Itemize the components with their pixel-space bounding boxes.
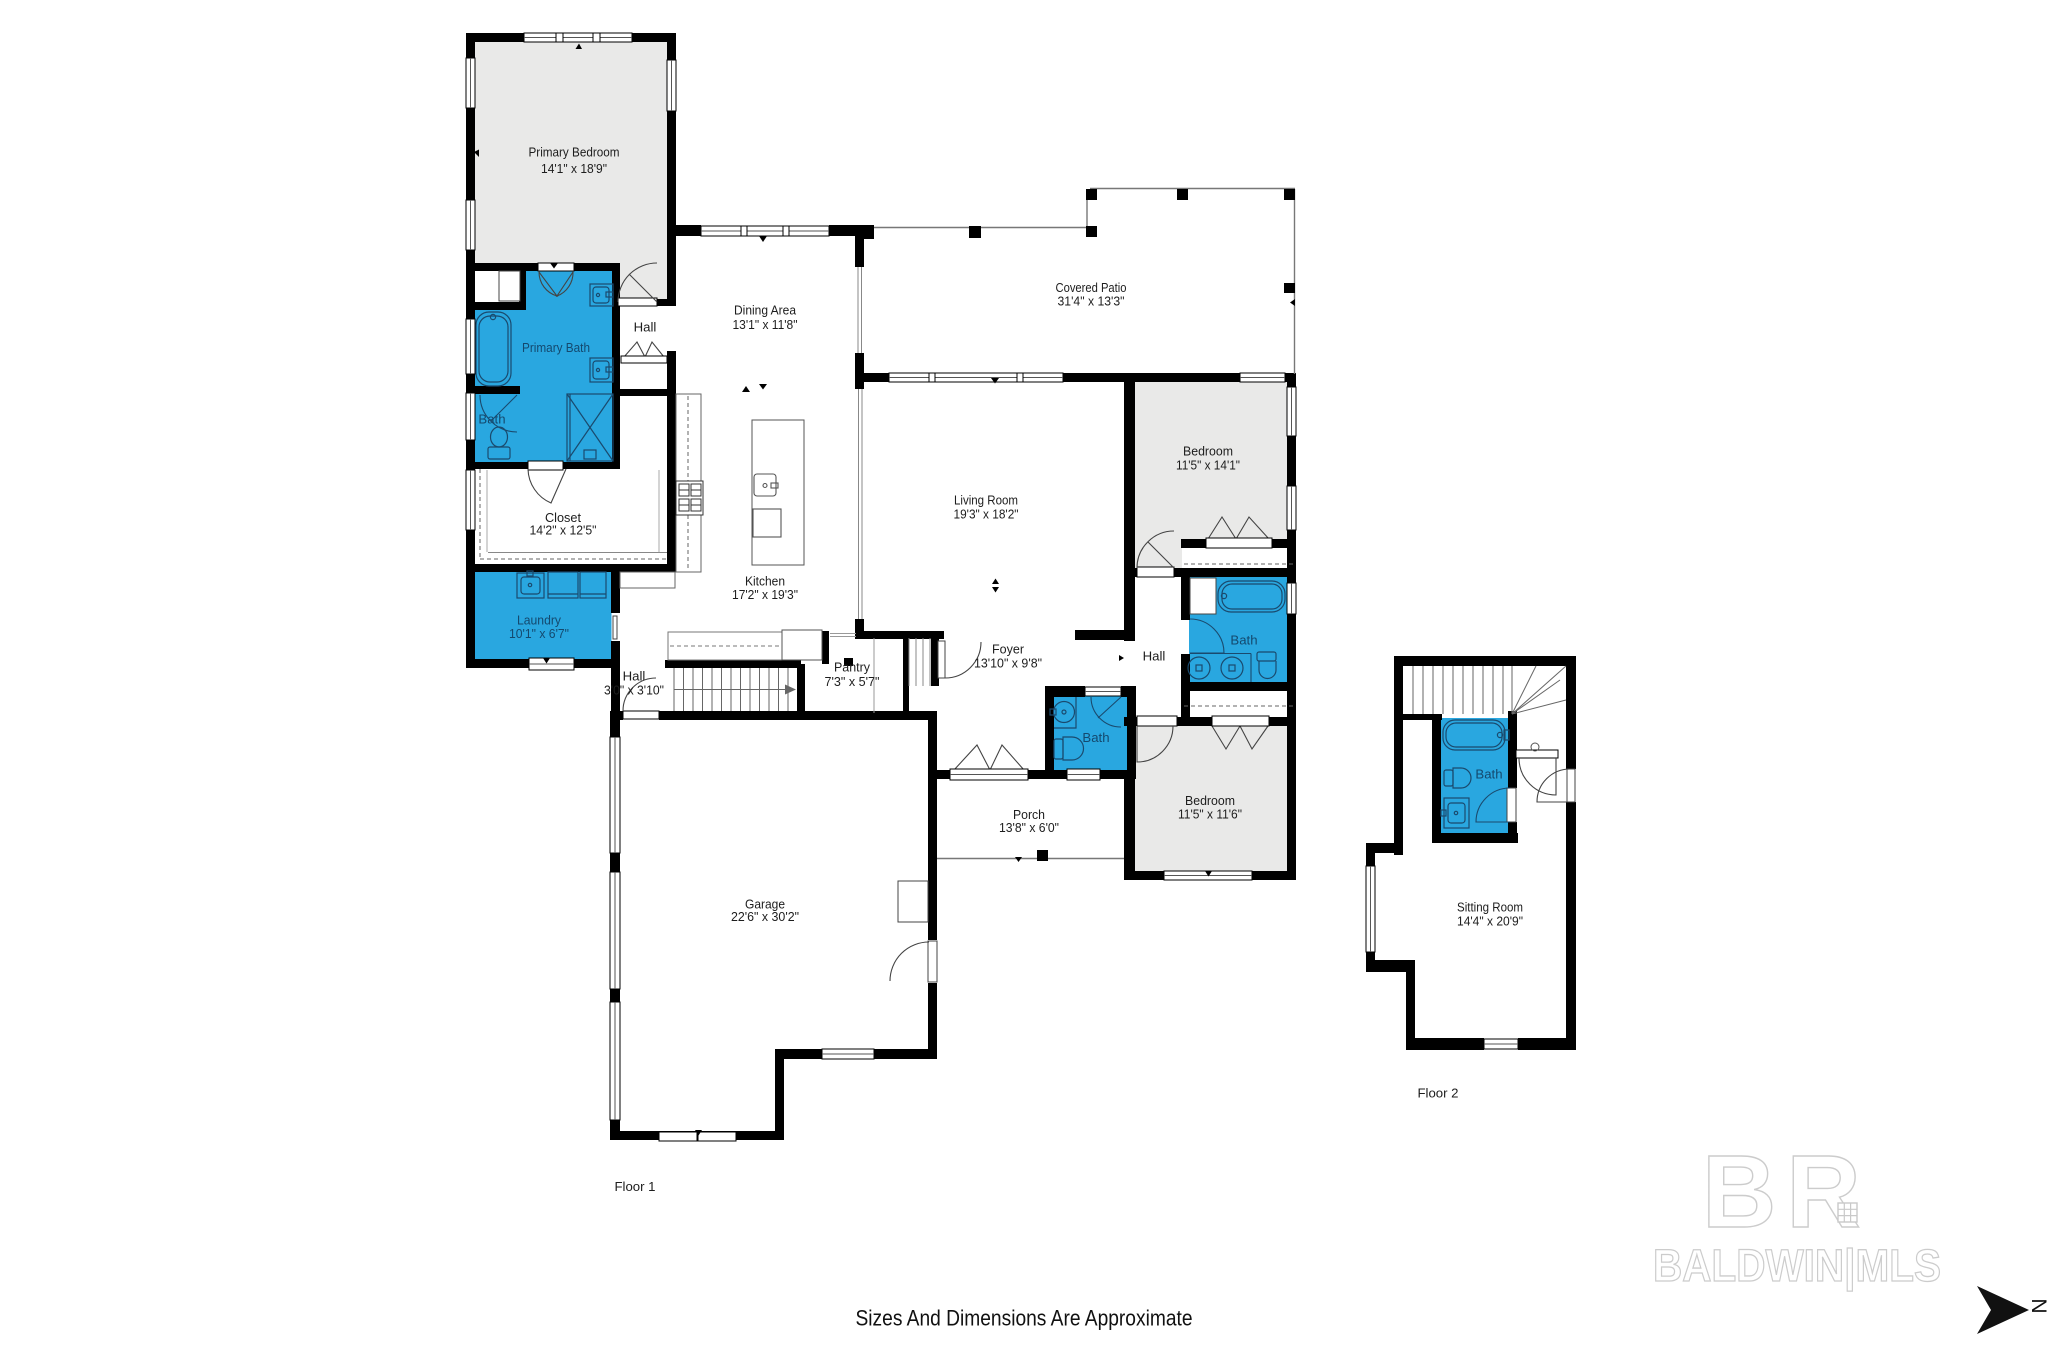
- svg-text:Bath: Bath: [1230, 633, 1257, 648]
- svg-text:13'1" x 11'8": 13'1" x 11'8": [733, 317, 798, 332]
- svg-text:13'8" x 6'0": 13'8" x 6'0": [999, 820, 1059, 835]
- svg-text:7'3" x 5'7": 7'3" x 5'7": [825, 674, 880, 689]
- svg-text:10'1" x 6'7": 10'1" x 6'7": [509, 626, 569, 641]
- svg-text:Pantry: Pantry: [834, 660, 870, 675]
- svg-text:19'3" x 18'2": 19'3" x 18'2": [954, 507, 1019, 522]
- svg-text:Sitting Room: Sitting Room: [1457, 900, 1523, 915]
- svg-text:N: N: [2027, 1298, 2048, 1313]
- svg-text:11'5" x 14'1": 11'5" x 14'1": [1176, 458, 1240, 473]
- svg-text:Bath: Bath: [1082, 730, 1109, 745]
- svg-text:BALDWIN|MLS: BALDWIN|MLS: [1653, 1240, 1941, 1292]
- svg-text:Living Room: Living Room: [954, 493, 1018, 508]
- svg-text:Hall: Hall: [623, 669, 646, 684]
- svg-text:17'2" x 19'3": 17'2" x 19'3": [732, 587, 798, 602]
- svg-text:Primary Bedroom: Primary Bedroom: [529, 145, 620, 160]
- svg-text:22'6" x 30'2": 22'6" x 30'2": [731, 909, 799, 924]
- svg-text:14'4" x 20'9": 14'4" x 20'9": [1457, 914, 1523, 929]
- svg-text:Dining Area: Dining Area: [734, 303, 797, 318]
- svg-text:Foyer: Foyer: [992, 642, 1025, 657]
- svg-text:Bath: Bath: [1475, 767, 1502, 782]
- svg-text:Bath: Bath: [478, 412, 505, 427]
- svg-text:Primary Bath: Primary Bath: [522, 340, 590, 355]
- svg-text:11'5" x 11'6": 11'5" x 11'6": [1178, 807, 1242, 822]
- svg-text:Sizes And Dimensions Are Appro: Sizes And Dimensions Are Approximate: [856, 1306, 1193, 1331]
- svg-text:13'10" x 9'8": 13'10" x 9'8": [974, 656, 1042, 671]
- svg-text:Bedroom: Bedroom: [1183, 444, 1233, 459]
- svg-text:14'1" x 18'9": 14'1" x 18'9": [541, 161, 607, 176]
- svg-text:Hall: Hall: [634, 320, 657, 335]
- svg-text:14'2" x 12'5": 14'2" x 12'5": [530, 523, 597, 538]
- svg-text:BR: BR: [1702, 1134, 1871, 1249]
- svg-text:Floor 1: Floor 1: [614, 1179, 655, 1194]
- svg-text:3'0" x 3'10": 3'0" x 3'10": [604, 683, 664, 698]
- svg-text:Hall: Hall: [1143, 649, 1166, 664]
- svg-text:31'4" x 13'3": 31'4" x 13'3": [1058, 294, 1125, 309]
- svg-text:Floor 2: Floor 2: [1417, 1086, 1458, 1101]
